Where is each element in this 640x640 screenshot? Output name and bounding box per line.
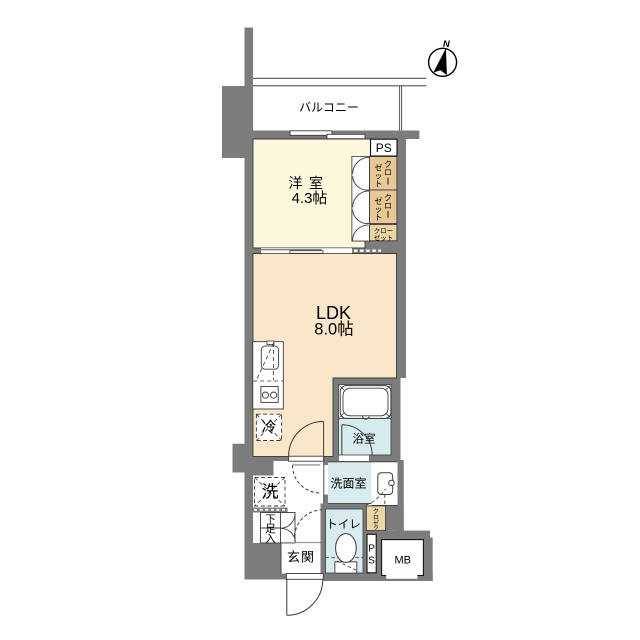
- svg-text:洋室: 洋室: [289, 175, 330, 191]
- svg-text:冷: 冷: [261, 419, 276, 436]
- svg-text:ゼット: ゼット: [374, 233, 394, 242]
- svg-text:洗: 洗: [262, 483, 279, 502]
- svg-text:ト: ト: [375, 180, 383, 189]
- svg-text:S: S: [368, 556, 375, 567]
- svg-text:ッ: ッ: [373, 526, 379, 532]
- svg-text:ロ: ロ: [384, 202, 392, 211]
- svg-text:トイレ: トイレ: [326, 519, 361, 531]
- svg-text:入: 入: [265, 533, 276, 545]
- svg-text:4.3帖: 4.3帖: [292, 190, 328, 207]
- svg-text:ト: ト: [375, 213, 383, 222]
- svg-text:MB: MB: [394, 555, 411, 567]
- svg-text:ク: ク: [373, 509, 379, 516]
- svg-text:N: N: [443, 39, 451, 50]
- svg-text:8.0帖: 8.0帖: [314, 320, 353, 339]
- svg-text:クロー: クロー: [374, 227, 394, 235]
- svg-text:浴室: 浴室: [353, 432, 376, 446]
- svg-text:バルコニー: バルコニー: [299, 100, 359, 114]
- svg-text:PS: PS: [376, 141, 392, 155]
- svg-text:玄関: 玄関: [287, 550, 315, 565]
- svg-text:P: P: [368, 544, 375, 555]
- svg-text:洗面室: 洗面室: [330, 476, 366, 491]
- svg-text:ロ: ロ: [384, 168, 392, 177]
